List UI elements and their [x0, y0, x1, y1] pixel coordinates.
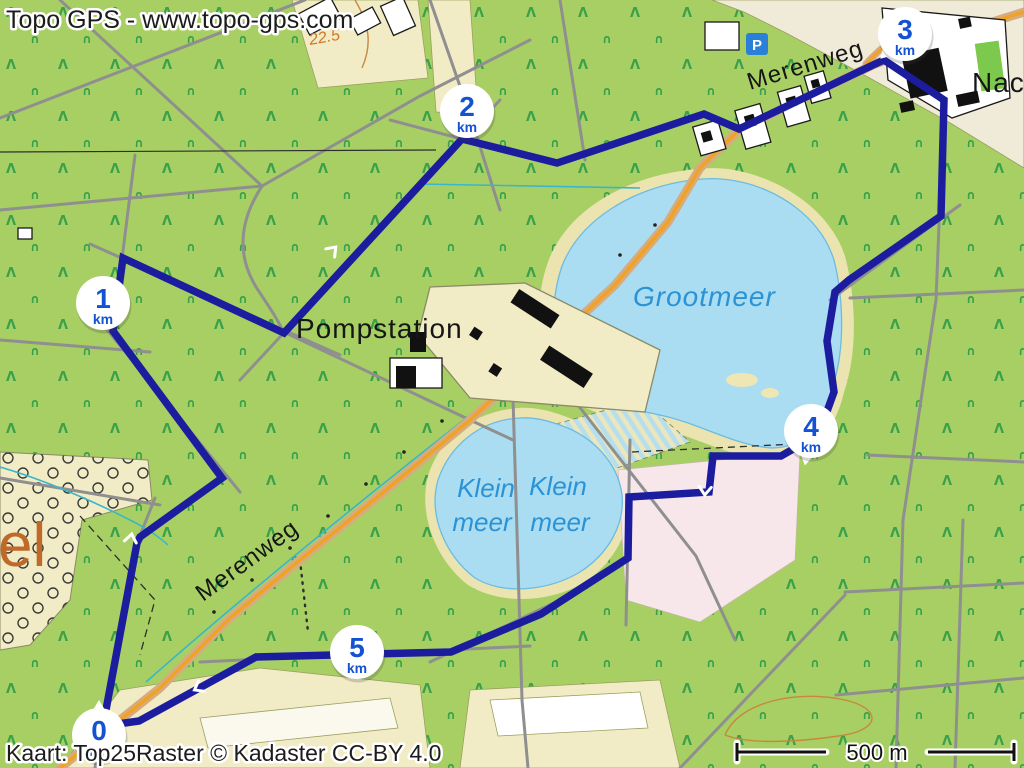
svg-text:km: km	[347, 660, 367, 676]
kleinmeer-right-label-1: Klein	[529, 471, 587, 501]
svg-text:1: 1	[95, 283, 111, 314]
svg-text:4: 4	[803, 411, 819, 442]
place-name-partial-left: el	[0, 511, 46, 580]
pompstation-label: Pompstation	[296, 313, 463, 344]
app-title: Topo GPS - www.topo-gps.com	[6, 6, 353, 34]
svg-text:5: 5	[349, 632, 365, 663]
map-attribution: Kaart: Top25Raster © Kadaster CC-BY 4.0	[6, 740, 441, 766]
svg-text:km: km	[93, 311, 113, 327]
svg-text:km: km	[801, 439, 821, 455]
svg-text:2: 2	[459, 91, 475, 122]
kleinmeer-left-label-1: Klein	[457, 473, 515, 503]
svg-text:km: km	[895, 42, 915, 58]
svg-text:P: P	[752, 37, 762, 54]
place-name-partial-right: Nach	[972, 67, 1024, 98]
scale-label: 500 m	[846, 740, 907, 765]
map-view[interactable]: Λ ∩	[0, 0, 1024, 768]
parking-icon: P	[746, 33, 768, 55]
svg-text:km: km	[457, 119, 477, 135]
kleinmeer-right-label-2: meer	[530, 507, 591, 537]
svg-text:3: 3	[897, 14, 913, 45]
map-canvas[interactable]: Λ ∩	[0, 0, 1024, 768]
grootmeer-label: Grootmeer	[633, 281, 776, 312]
kleinmeer-left-label-2: meer	[452, 507, 513, 537]
